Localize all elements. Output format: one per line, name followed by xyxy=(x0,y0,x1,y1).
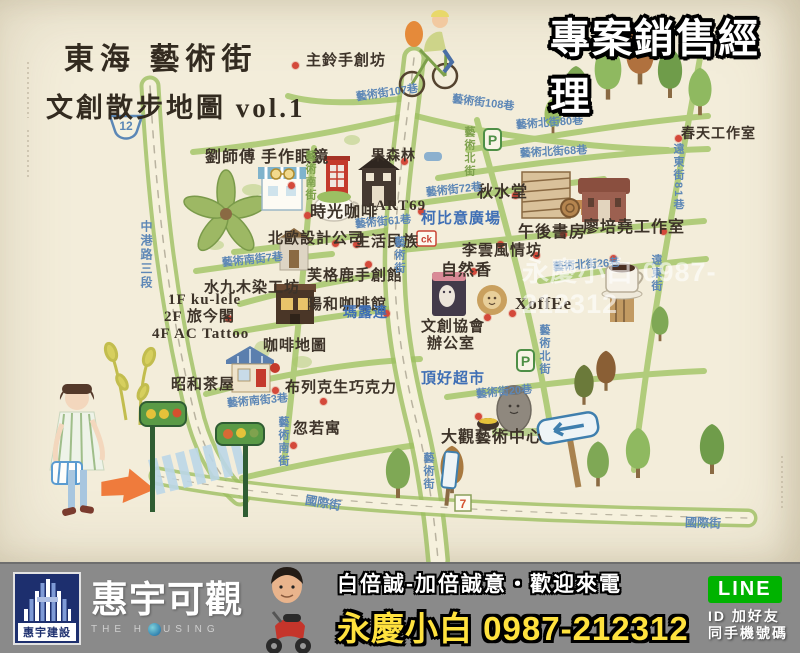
phone-line: 永慶小白 0987-212312 xyxy=(337,602,697,650)
ad-banner: 惠宇建設 惠宇可觀 THE H USING 白倍誠-加倍誠意・歡迎來電 xyxy=(0,562,800,653)
brand-name: 惠宇可觀 xyxy=(91,582,253,619)
map-title: 東海 藝術街 文創散步地圖 vol.1 xyxy=(46,34,306,125)
svg-text:P: P xyxy=(521,353,530,369)
brand-sub-right: USING xyxy=(163,624,220,635)
parking-sign: P xyxy=(484,129,501,150)
company-name: 惠宇建設 xyxy=(18,623,76,641)
brand-lockup: 惠宇可觀 THE H USING xyxy=(91,582,253,636)
slogan-text: 白倍誠-加倍誠意・歡迎來電 xyxy=(337,568,697,598)
coffee-house-illustration xyxy=(274,284,316,324)
orange-arrow-icon xyxy=(99,465,157,507)
line-contact: LINE ID 加好友 同手機號碼 xyxy=(708,576,788,642)
contact-block: 白倍誠-加倍誠意・歡迎來電 永慶小白 0987-212312 xyxy=(337,568,697,650)
screenshot-root: 12 P P ck 7 東海 藝術街 xyxy=(0,0,800,653)
svg-text:ck: ck xyxy=(421,235,433,246)
map-title-line1: 東海 藝術街 xyxy=(46,34,306,78)
leaf-plant-icon xyxy=(181,170,270,255)
girl-illustration xyxy=(50,384,104,517)
line-id-line1: ID 加好友 xyxy=(708,608,788,625)
ck-sign: ck xyxy=(417,231,436,246)
map-title-line2: 文創散步地圖 vol.1 xyxy=(46,86,306,125)
bus-stop-icon xyxy=(424,152,442,161)
agent-photo xyxy=(255,564,319,653)
globe-icon xyxy=(148,623,161,636)
phone-watermark: 永慶小白 0987-212312 xyxy=(522,250,800,320)
lion-statue-illustration xyxy=(477,285,507,315)
parking-sign: P xyxy=(517,350,534,371)
seven-sign: 7 xyxy=(455,495,471,511)
svg-text:P: P xyxy=(488,132,497,148)
eyeglass-shop-illustration xyxy=(258,167,306,210)
agent-name: 永慶小白 xyxy=(337,610,473,647)
map-area: 12 P P ck 7 東海 藝術街 xyxy=(0,0,800,562)
brand-sub-left: THE H xyxy=(91,624,146,635)
phone-number: 0987-212312 xyxy=(483,610,689,647)
line-id-note: ID 加好友 同手機號碼 xyxy=(708,608,788,642)
brand-subtitle: THE H USING xyxy=(91,623,253,636)
logo-buildings-icon xyxy=(23,577,71,621)
line-id-line2: 同手機號碼 xyxy=(708,625,788,642)
svg-text:7: 7 xyxy=(460,497,467,511)
teacup-cafe-illustration xyxy=(314,191,358,221)
vending-machine-illustration xyxy=(432,272,466,316)
sales-manager-badge: 專案銷售經理 xyxy=(550,6,800,122)
company-logo: 惠宇建設 xyxy=(13,572,81,645)
teahouse-illustration xyxy=(226,346,280,392)
line-badge: LINE xyxy=(708,576,782,603)
